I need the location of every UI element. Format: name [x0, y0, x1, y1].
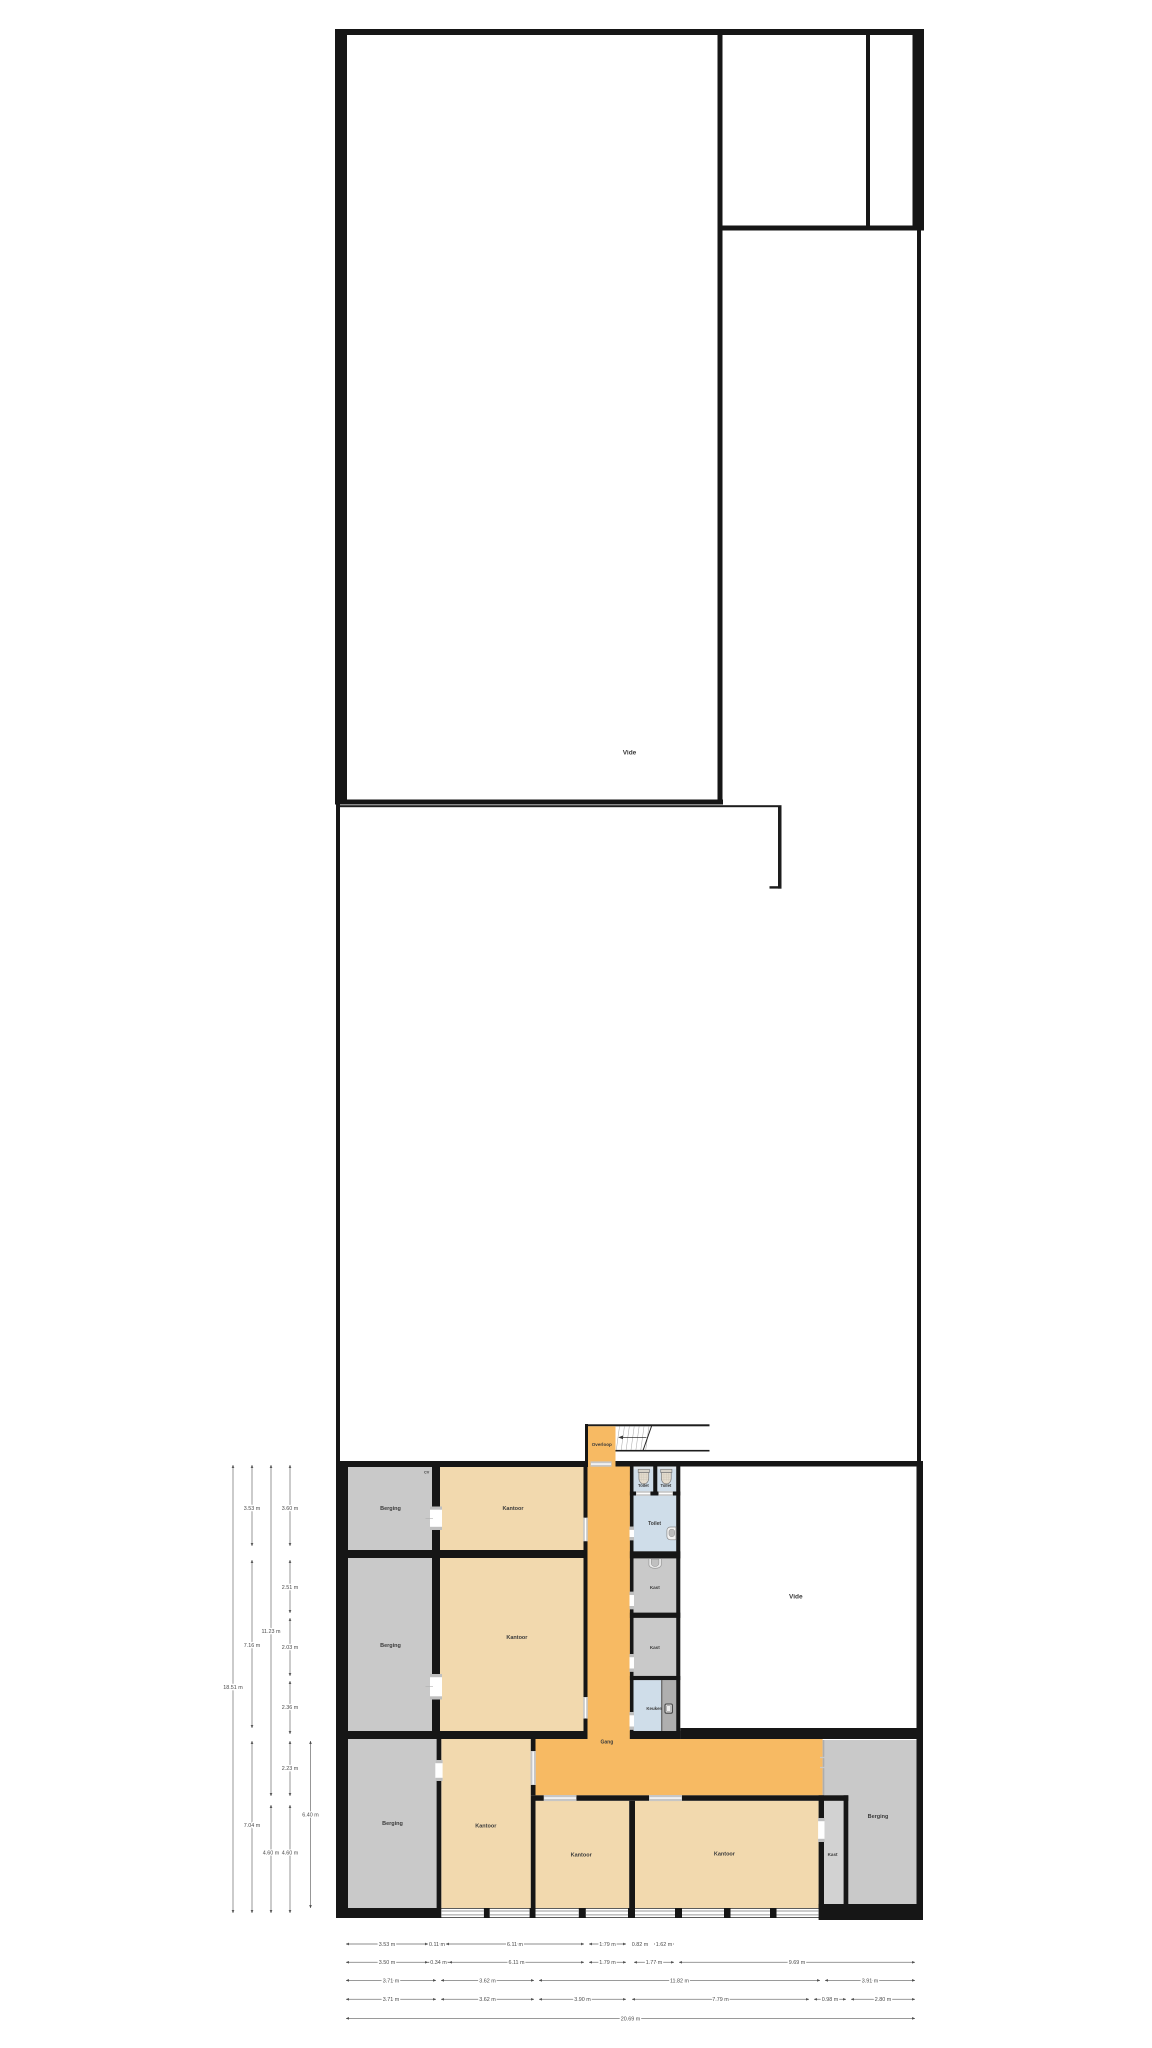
svg-text:Toilet: Toilet: [638, 1483, 649, 1488]
svg-text:Berging: Berging: [868, 1814, 889, 1820]
svg-text:11.82 m: 11.82 m: [670, 1978, 690, 1984]
svg-text:Kantoor: Kantoor: [475, 1823, 497, 1829]
svg-text:3.53 m: 3.53 m: [244, 1506, 261, 1512]
svg-text:7.04 m: 7.04 m: [244, 1823, 261, 1829]
svg-text:Overloop: Overloop: [592, 1442, 612, 1447]
svg-text:Kast: Kast: [650, 1645, 660, 1650]
svg-text:3.90 m: 3.90 m: [574, 1997, 591, 2003]
svg-text:Keuken: Keuken: [646, 1706, 662, 1711]
svg-text:3.62 m: 3.62 m: [479, 1978, 496, 1984]
svg-text:Berging: Berging: [382, 1821, 403, 1827]
svg-text:Kantoor: Kantoor: [571, 1853, 593, 1859]
svg-text:4.60 m: 4.60 m: [263, 1850, 280, 1856]
svg-text:3.60 m: 3.60 m: [282, 1506, 299, 1512]
svg-text:Berging: Berging: [380, 1643, 401, 1649]
svg-text:2.36 m: 2.36 m: [282, 1705, 299, 1711]
svg-text:0.82 m: 0.82 m: [632, 1942, 649, 1948]
svg-text:20.69 m: 20.69 m: [621, 2016, 641, 2022]
svg-text:4.60 m: 4.60 m: [282, 1850, 299, 1856]
svg-text:3.50 m: 3.50 m: [379, 1960, 396, 1966]
svg-text:2.23 m: 2.23 m: [282, 1766, 299, 1772]
svg-text:1.62 m: 1.62 m: [656, 1942, 673, 1948]
svg-text:11.23 m: 11.23 m: [261, 1629, 281, 1635]
svg-text:Kantoor: Kantoor: [502, 1506, 524, 1512]
svg-text:Kantoor: Kantoor: [506, 1635, 528, 1641]
svg-text:Vide: Vide: [623, 750, 637, 757]
svg-text:1.79 m: 1.79 m: [599, 1960, 616, 1966]
svg-text:3.62 m: 3.62 m: [479, 1997, 496, 2003]
svg-text:3.71 m: 3.71 m: [383, 1997, 400, 2003]
svg-text:CV: CV: [424, 1471, 430, 1475]
svg-text:Kast: Kast: [650, 1585, 660, 1590]
svg-text:2.80 m: 2.80 m: [875, 1997, 892, 2003]
svg-text:0.98 m: 0.98 m: [822, 1997, 839, 2003]
svg-text:Toilet: Toilet: [648, 1521, 661, 1527]
svg-text:6.11 m: 6.11 m: [507, 1942, 524, 1948]
svg-text:18.51 m: 18.51 m: [223, 1685, 243, 1691]
svg-text:2.51 m: 2.51 m: [282, 1585, 299, 1591]
svg-text:3.53 m: 3.53 m: [379, 1942, 396, 1948]
svg-text:1.77 m: 1.77 m: [646, 1960, 663, 1966]
svg-text:3.71 m: 3.71 m: [383, 1978, 400, 1984]
svg-text:7.79 m: 7.79 m: [712, 1997, 729, 2003]
svg-text:6.40 m: 6.40 m: [302, 1812, 319, 1818]
svg-text:2.03 m: 2.03 m: [282, 1645, 299, 1651]
svg-text:1.79 m: 1.79 m: [599, 1942, 616, 1948]
svg-text:9.69 m: 9.69 m: [789, 1960, 806, 1966]
svg-text:Vide: Vide: [789, 1594, 803, 1601]
svg-text:Kast: Kast: [828, 1852, 838, 1857]
svg-text:7.16 m: 7.16 m: [244, 1643, 261, 1649]
svg-text:Toilet: Toilet: [660, 1483, 671, 1488]
svg-text:Kantoor: Kantoor: [714, 1852, 736, 1858]
svg-text:0.34 m: 0.34 m: [430, 1960, 447, 1966]
svg-text:3.91 m: 3.91 m: [862, 1978, 879, 1984]
svg-text:6.11 m: 6.11 m: [508, 1960, 525, 1966]
svg-text:Berging: Berging: [380, 1506, 401, 1512]
svg-text:0.11 m: 0.11 m: [429, 1942, 446, 1948]
svg-text:Gang: Gang: [601, 1740, 614, 1746]
